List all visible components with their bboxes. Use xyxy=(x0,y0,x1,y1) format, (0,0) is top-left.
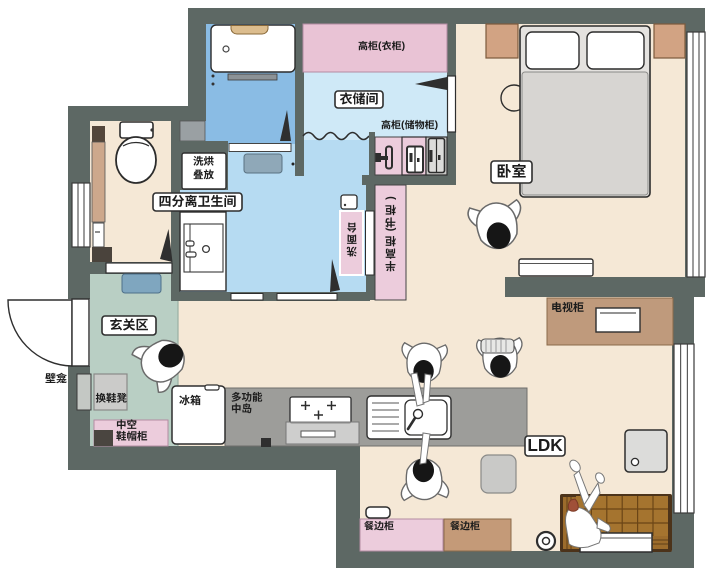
svg-text:(: ( xyxy=(401,119,405,131)
svg-text:): ) xyxy=(435,119,439,131)
svg-text:): ) xyxy=(402,40,406,52)
svg-text:LDK: LDK xyxy=(527,435,563,455)
svg-text:): ) xyxy=(385,195,397,202)
svg-text:(: ( xyxy=(378,40,382,52)
